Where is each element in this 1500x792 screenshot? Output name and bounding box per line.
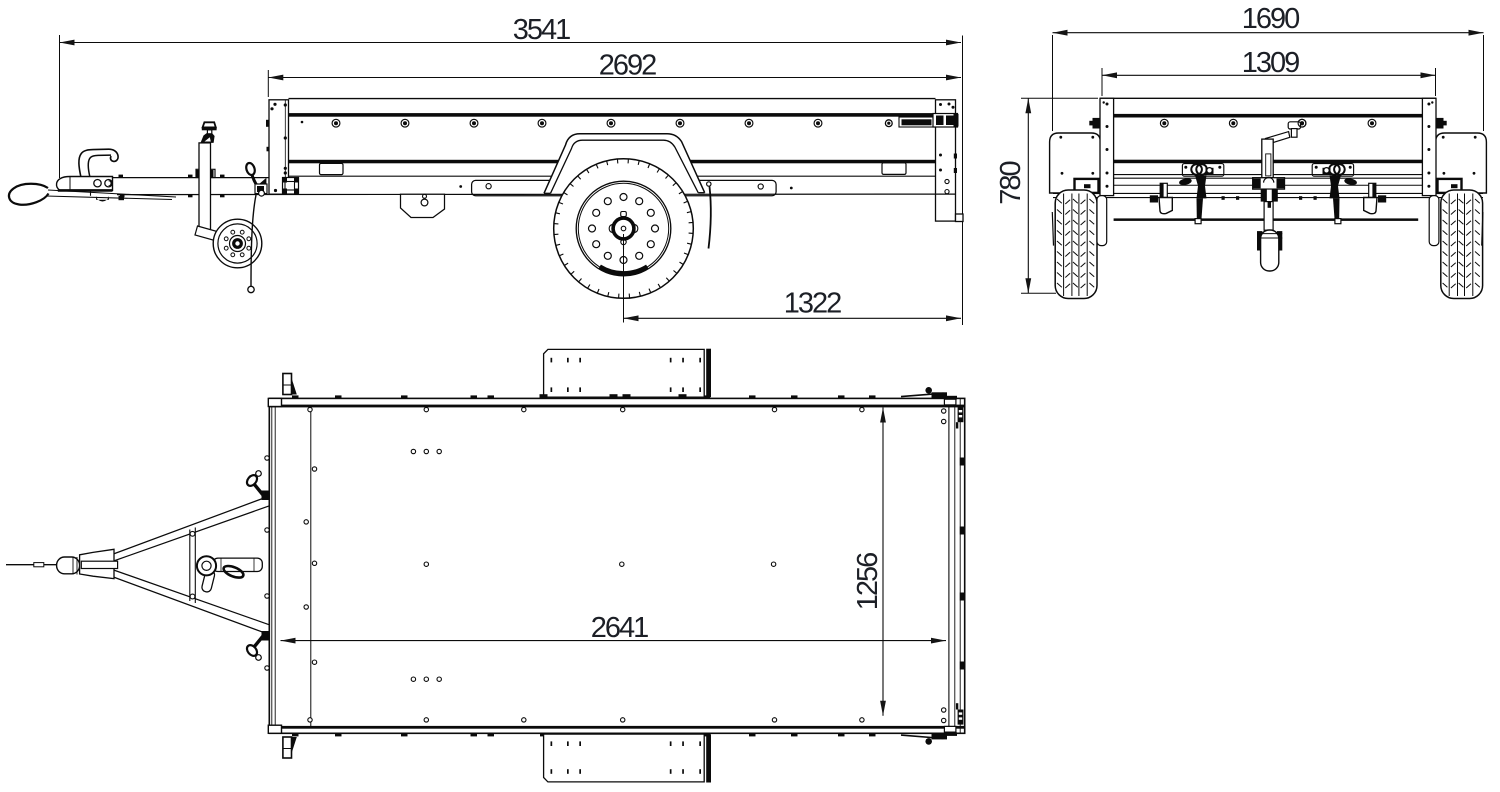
svg-text:3541: 3541 [513, 14, 570, 46]
svg-text:2692: 2692 [599, 50, 656, 82]
svg-text:780: 780 [995, 161, 1027, 204]
svg-text:1309: 1309 [1242, 47, 1299, 79]
svg-text:1690: 1690 [1242, 3, 1299, 35]
svg-text:1322: 1322 [784, 288, 841, 320]
svg-text:2641: 2641 [591, 612, 648, 644]
svg-text:1256: 1256 [852, 553, 884, 610]
